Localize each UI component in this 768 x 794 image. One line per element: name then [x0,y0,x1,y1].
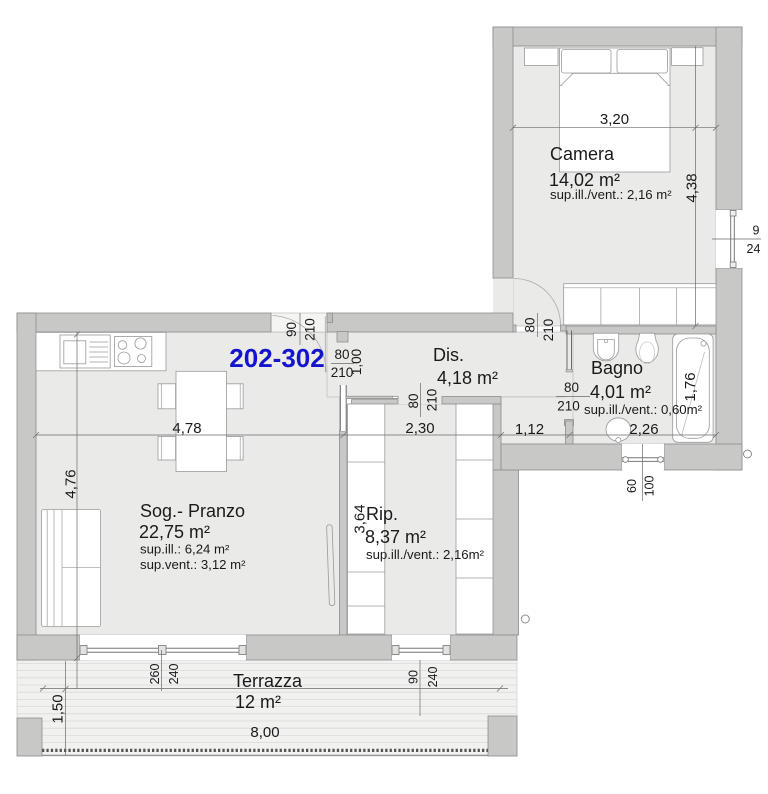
svg-text:Bagno: Bagno [591,358,643,378]
svg-text:90: 90 [407,670,421,684]
svg-text:210: 210 [425,389,440,412]
svg-text:80: 80 [406,393,421,408]
svg-text:80: 80 [523,317,538,332]
svg-text:2,26: 2,26 [629,421,658,438]
svg-text:sup.ill./vent.: 2,16 m²: sup.ill./vent.: 2,16 m² [550,187,672,202]
svg-text:202-302: 202-302 [229,343,324,373]
svg-text:60: 60 [625,479,639,493]
svg-text:3,64: 3,64 [352,504,369,533]
svg-text:sup.vent.: 3,12 m²: sup.vent.: 3,12 m² [140,557,246,572]
svg-text:Dis.: Dis. [433,345,464,365]
svg-text:12 m²: 12 m² [235,692,281,712]
svg-text:260: 260 [148,664,162,685]
svg-text:240: 240 [167,664,181,685]
svg-text:Camera: Camera [550,144,615,164]
svg-text:1,50: 1,50 [50,694,67,723]
svg-text:210: 210 [303,318,318,341]
svg-text:240: 240 [426,667,440,688]
svg-text:80: 80 [564,380,579,395]
svg-text:4,76: 4,76 [63,469,80,498]
svg-text:4,38: 4,38 [684,173,701,202]
svg-text:80: 80 [334,347,349,362]
svg-text:Sog.- Pranzo: Sog.- Pranzo [140,501,245,521]
svg-text:1,12: 1,12 [515,421,544,438]
svg-text:sup.ill./vent.: 0,60m²: sup.ill./vent.: 0,60m² [584,402,703,417]
svg-text:1,76: 1,76 [682,372,699,401]
svg-text:8,00: 8,00 [250,724,279,741]
svg-text:4,18 m²: 4,18 m² [437,368,498,388]
svg-text:1,00: 1,00 [349,349,364,375]
svg-text:9: 9 [753,224,760,238]
svg-text:22,75 m²: 22,75 m² [139,522,210,542]
svg-text:210: 210 [557,399,580,414]
svg-text:100: 100 [643,476,657,497]
svg-text:sup.ill./vent.: 2,16m²: sup.ill./vent.: 2,16m² [366,547,485,562]
svg-text:8,37 m²: 8,37 m² [365,527,426,547]
svg-text:4,78: 4,78 [172,420,201,437]
svg-text:2,30: 2,30 [405,420,434,437]
svg-text:Rip.: Rip. [366,504,398,524]
svg-text:Terrazza: Terrazza [233,671,303,691]
svg-text:3,20: 3,20 [600,111,629,128]
svg-text:4,01 m²: 4,01 m² [590,382,651,402]
svg-text:210: 210 [541,319,556,342]
svg-text:24: 24 [747,242,761,256]
svg-text:sup.ill.: 6,24 m²: sup.ill.: 6,24 m² [140,542,230,557]
svg-text:90: 90 [284,322,299,337]
